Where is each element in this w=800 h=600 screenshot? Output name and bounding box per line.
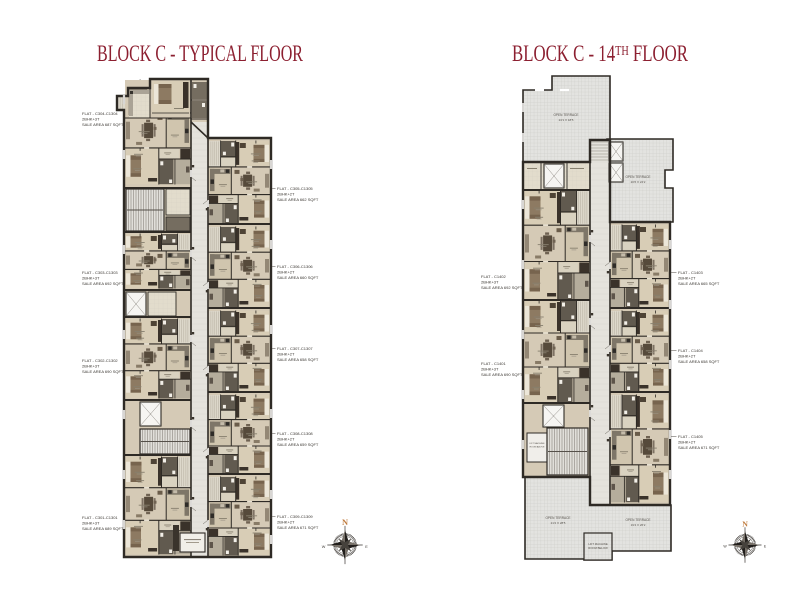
svg-text:2BHK+3T: 2BHK+3T — [82, 117, 100, 122]
svg-text:2BHK+2T: 2BHK+2T — [277, 437, 295, 442]
svg-text:N: N — [342, 518, 348, 527]
svg-text:SALE AREA 659 SQFT: SALE AREA 659 SQFT — [277, 442, 319, 447]
svg-text:2BHK+2T: 2BHK+2T — [277, 520, 295, 525]
svg-text:FLAT - C309-C1309: FLAT - C309-C1309 — [277, 514, 313, 519]
svg-text:OPEN TERRACE: OPEN TERRACE — [625, 518, 650, 522]
svg-text:SALE AREA 660 SQFT: SALE AREA 660 SQFT — [277, 275, 319, 280]
svg-text:FLAT - C304-C1304: FLAT - C304-C1304 — [82, 111, 118, 116]
svg-text:2BHK+3T: 2BHK+3T — [82, 364, 100, 369]
svg-text:2BHK+3T: 2BHK+3T — [481, 367, 499, 372]
svg-text:SALE AREA 665 SQFT: SALE AREA 665 SQFT — [678, 281, 720, 286]
svg-text:2BHK+2T: 2BHK+2T — [277, 192, 295, 197]
svg-text:W: W — [322, 545, 326, 549]
svg-text:21'2 X 28'5: 21'2 X 28'5 — [551, 521, 566, 525]
svg-text:SALE AREA 692 SQFT: SALE AREA 692 SQFT — [82, 281, 124, 286]
svg-text:BLOCK C - 14TH FLOOR: BLOCK C - 14TH FLOOR — [512, 41, 688, 66]
svg-text:FLAT - C301-C1301: FLAT - C301-C1301 — [82, 515, 118, 520]
svg-text:2BHK+2T: 2BHK+2T — [277, 270, 295, 275]
svg-text:BLOCK C - TYPICAL FLOOR: BLOCK C - TYPICAL FLOOR — [97, 41, 303, 66]
svg-text:LIFT MACHINE: LIFT MACHINE — [529, 442, 545, 445]
svg-text:19'4 X 26'2: 19'4 X 26'2 — [631, 523, 646, 527]
svg-text:SALE AREA 687 SQFT: SALE AREA 687 SQFT — [82, 122, 124, 127]
svg-text:ROOM BELOW: ROOM BELOW — [588, 546, 608, 550]
svg-text:FLAT - C1401: FLAT - C1401 — [481, 361, 507, 366]
svg-text:FLAT - C308-C1308: FLAT - C308-C1308 — [277, 431, 313, 436]
svg-text:SALE AREA 671 SQFT: SALE AREA 671 SQFT — [277, 525, 319, 530]
svg-text:FLAT - C306-C1306: FLAT - C306-C1306 — [277, 264, 313, 269]
svg-text:24'1 X 18'5: 24'1 X 18'5 — [559, 118, 574, 122]
svg-text:SALE AREA 690 SQFT: SALE AREA 690 SQFT — [82, 369, 124, 374]
svg-text:N: N — [742, 519, 748, 528]
svg-text:SALE AREA 662 SQFT: SALE AREA 662 SQFT — [277, 197, 319, 202]
svg-text:SALE AREA 658 SQFT: SALE AREA 658 SQFT — [678, 359, 720, 364]
svg-text:E: E — [365, 545, 368, 549]
svg-text:2BHK+3T: 2BHK+3T — [82, 276, 100, 281]
svg-text:2BHK+2T: 2BHK+2T — [678, 440, 696, 445]
svg-text:FLAT - C1405: FLAT - C1405 — [678, 434, 704, 439]
svg-text:FLAT - C307-C1307: FLAT - C307-C1307 — [277, 346, 313, 351]
svg-text:2BHK+3T: 2BHK+3T — [82, 521, 100, 526]
svg-text:SALE AREA 690 SQFT: SALE AREA 690 SQFT — [481, 372, 523, 377]
svg-text:2BHK+3T: 2BHK+3T — [481, 280, 499, 285]
svg-text:FLAT - C303-C1303: FLAT - C303-C1303 — [82, 270, 118, 275]
svg-text:OPEN TERRACE: OPEN TERRACE — [625, 175, 650, 179]
svg-text:OPEN TERRACE: OPEN TERRACE — [545, 516, 570, 520]
svg-text:FLAT - C302-C1302: FLAT - C302-C1302 — [82, 358, 118, 363]
svg-text:FLAT - C305-C1305: FLAT - C305-C1305 — [277, 186, 313, 191]
svg-text:2BHK+2T: 2BHK+2T — [678, 276, 696, 281]
svg-text:OPEN TERRACE: OPEN TERRACE — [553, 113, 578, 117]
svg-text:SALE AREA 692 SQFT: SALE AREA 692 SQFT — [481, 285, 523, 290]
svg-text:FLAT - C1403: FLAT - C1403 — [678, 270, 704, 275]
svg-text:20'6 X 24'2: 20'6 X 24'2 — [631, 180, 646, 184]
svg-text:SALE AREA 689 SQFT: SALE AREA 689 SQFT — [82, 526, 124, 531]
svg-text:2BHK+2T: 2BHK+2T — [678, 354, 696, 359]
svg-text:FLAT - C1404: FLAT - C1404 — [678, 348, 704, 353]
svg-text:SALE AREA 671 SQFT: SALE AREA 671 SQFT — [678, 445, 720, 450]
svg-text:2BHK+2T: 2BHK+2T — [277, 352, 295, 357]
svg-text:ROOM ABOVE: ROOM ABOVE — [530, 446, 545, 449]
svg-text:FLAT - C1402: FLAT - C1402 — [481, 274, 507, 279]
svg-text:SALE AREA 658 SQFT: SALE AREA 658 SQFT — [277, 357, 319, 362]
